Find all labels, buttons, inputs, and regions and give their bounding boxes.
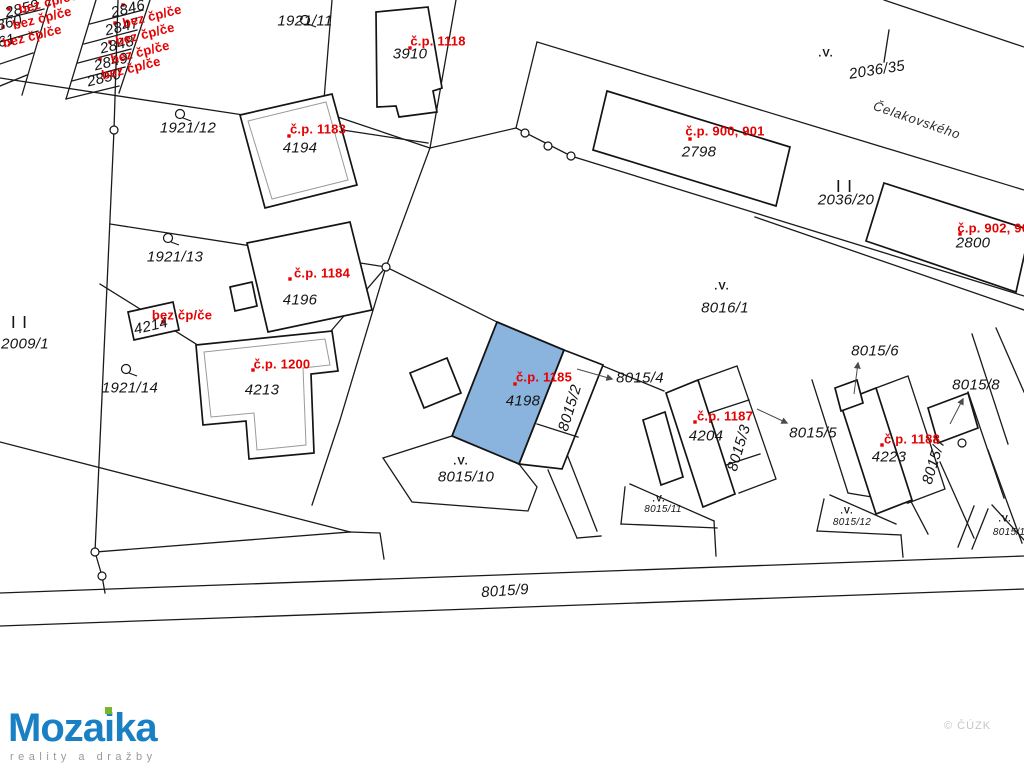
parcel-label: 4223 (872, 450, 907, 465)
parcel-label: 1921/11 (277, 14, 332, 29)
parcel-label: 2800 (956, 236, 991, 251)
parcel-label: 2846 (109, 0, 146, 20)
cuzk-watermark: © ČÚZK (944, 720, 991, 732)
map-labels: Čelakovského 284628472848284928502859286… (0, 0, 1024, 768)
parcel-label: 8015/10 (438, 470, 494, 485)
building-cp-label: bez čp/če (121, 2, 183, 29)
landuse-symbol-v: .V. (840, 507, 853, 516)
cadastral-map-view: Čelakovského 284628472848284928502859286… (0, 0, 1024, 768)
building-cp-label: č.p. 902, 903 (957, 222, 1024, 235)
building-cp-label: bez čp/če (100, 54, 162, 81)
parcel-label: 2009/1 (1, 337, 49, 352)
building-cp-label: bez čp/če (11, 4, 73, 31)
landuse-symbol-v: .V. (818, 49, 833, 60)
landuse-symbol-v: .V. (453, 457, 468, 468)
parcel-label: 4204 (689, 429, 724, 444)
mozaika-logo: Mozaika reality a dražby (8, 708, 157, 763)
building-cp-label: bez čp/če (114, 20, 176, 47)
parcel-label: 8015/3 (725, 423, 753, 473)
parcel-label: 4198 (506, 394, 541, 409)
parcel-label: 8015/2 (556, 383, 584, 433)
parcel-label: 3910 (393, 47, 428, 62)
parcel-label: 2850 (85, 67, 122, 90)
logo-i-green-dot: i (104, 706, 114, 750)
building-cp-label: č.p. 1185 (516, 371, 572, 384)
building-cp-label: č.p. 1183 (290, 123, 346, 136)
parcel-label: 8015/4 (616, 371, 664, 386)
building-cp-label: bez čp/če (1, 22, 63, 49)
parcel-label: 4194 (283, 141, 318, 156)
landuse-symbol-pipes: | | (837, 179, 854, 192)
parcel-label: 2859 (3, 0, 40, 20)
street-name-label: Čelakovského (872, 99, 963, 141)
building-cp-label: č.p. 1187 (697, 410, 753, 423)
parcel-label: 8015/6 (851, 344, 899, 359)
parcel-label: 1921/12 (160, 121, 216, 136)
parcel-label: 8015/9 (481, 582, 530, 600)
building-cp-label: bez čp/če (17, 0, 79, 16)
parcel-label: 1921/14 (102, 381, 158, 396)
parcel-label: 2848 (98, 34, 135, 57)
building-cp-label: č.p. 1184 (294, 267, 350, 280)
landuse-symbol-v: .V. (998, 515, 1011, 524)
parcel-label: 4196 (283, 293, 318, 308)
parcel-label: 4213 (245, 383, 280, 398)
parcel-label: 8016/1 (701, 301, 749, 316)
parcel-label: 8015/7 (920, 436, 948, 486)
parcel-label: 2036/35 (848, 58, 906, 82)
building-cp-label: bez čp/če (152, 309, 212, 322)
building-cp-label: č.p. 1118 (410, 35, 465, 48)
landuse-symbol-pipes: | | (12, 315, 29, 328)
parcel-label: 8015/11 (644, 505, 682, 515)
logo-brand: Mozaika (8, 708, 157, 748)
parcel-label: 2847 (103, 16, 140, 39)
logo-tagline: reality a dražby (10, 751, 157, 763)
parcel-label: 2798 (682, 145, 717, 160)
building-cp-label: bez čp/če (109, 38, 171, 65)
parcel-label: 2860 (0, 13, 24, 36)
parcel-label: 1921/13 (147, 250, 203, 265)
parcel-label: 8015/5 (789, 426, 837, 441)
landuse-symbol-v: .V. (714, 282, 729, 293)
landuse-symbol-v: .V. (652, 495, 665, 504)
parcel-label: 2036/20 (818, 193, 874, 208)
parcel-label: 8015/12 (833, 518, 871, 528)
building-cp-label: č.p. 1188 (884, 433, 940, 446)
parcel-label: 2849 (92, 51, 129, 74)
parcel-label: 8015/13 (993, 528, 1024, 538)
parcel-label: 4214 (132, 315, 169, 337)
building-cp-label: č.p. 900, 901 (685, 125, 764, 138)
building-cp-label: č.p. 1200 (254, 358, 311, 371)
parcel-label: 8015/8 (952, 378, 1000, 393)
parcel-label: 2861 (0, 32, 17, 55)
